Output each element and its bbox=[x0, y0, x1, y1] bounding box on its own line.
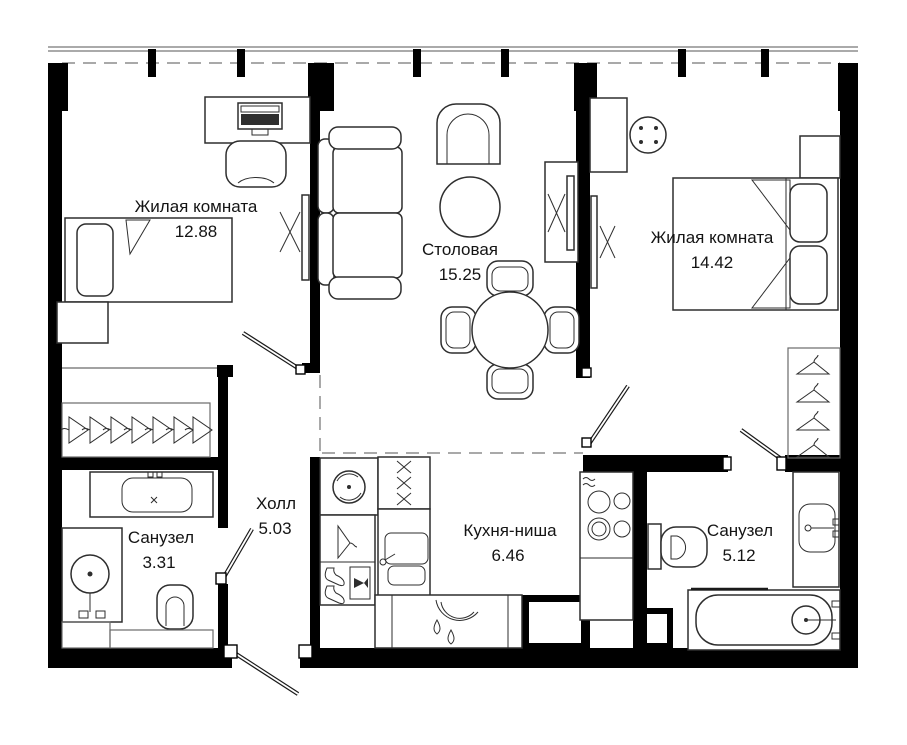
tv-wall-right-icon bbox=[591, 196, 615, 288]
washing-machine-icon bbox=[320, 458, 378, 515]
room-name: Кухня-ниша bbox=[463, 521, 557, 540]
toilet1-icon bbox=[157, 585, 193, 629]
zone-boundaries bbox=[320, 375, 583, 453]
kitchen-counter-bottom bbox=[375, 595, 522, 648]
floor-plan-page: Жилая комната 12.88 Столовая 15.25 Жилая… bbox=[0, 0, 907, 745]
bathroom1-ledges bbox=[62, 622, 213, 648]
room-label-hall: Холл 5.03 bbox=[256, 494, 296, 538]
closet-hangers-icon bbox=[61, 368, 217, 457]
door-entrance bbox=[224, 645, 312, 694]
room-name: Жилая комната bbox=[135, 197, 258, 216]
room-label-bath-2: Санузел 5.12 bbox=[707, 521, 773, 565]
dresser-icon bbox=[590, 98, 627, 172]
room-name: Столовая bbox=[422, 240, 498, 259]
room-area: 5.03 bbox=[258, 519, 291, 538]
facade-windows bbox=[48, 47, 858, 77]
shower-icon bbox=[62, 528, 122, 622]
room-name: Холл bbox=[256, 494, 296, 513]
cabinet-icon bbox=[800, 136, 840, 178]
bathroom1-sink-icon bbox=[90, 472, 213, 517]
toilet2-icon bbox=[648, 524, 707, 569]
room-name: Санузел bbox=[128, 528, 194, 547]
side-table-icon bbox=[630, 117, 666, 153]
tv-wall-left-icon bbox=[280, 195, 309, 280]
nightstand-icon bbox=[57, 302, 108, 343]
door-bath1 bbox=[216, 529, 252, 584]
bathtub-icon bbox=[688, 589, 840, 650]
room-area: 6.46 bbox=[491, 546, 524, 565]
sofa-icon bbox=[318, 127, 402, 299]
room-area: 3.31 bbox=[142, 553, 175, 572]
fridge-icon bbox=[378, 457, 430, 509]
floor-plan: Жилая комната 12.88 Столовая 15.25 Жилая… bbox=[0, 0, 907, 745]
room-area: 5.12 bbox=[722, 546, 755, 565]
coffee-table-icon bbox=[440, 177, 500, 237]
hall-closet-icon bbox=[320, 515, 375, 605]
door-bath2 bbox=[723, 430, 786, 470]
stove-icon bbox=[580, 472, 633, 620]
room-area: 14.42 bbox=[691, 253, 734, 272]
desk-icon bbox=[205, 97, 310, 143]
door-living2 bbox=[582, 368, 628, 447]
armchair-icon bbox=[437, 104, 500, 164]
room-name: Жилая комната bbox=[651, 228, 774, 247]
room-area: 12.88 bbox=[175, 222, 218, 241]
bathroom2-sink-icon bbox=[793, 472, 839, 587]
office-chair-icon bbox=[226, 141, 286, 187]
wardrobe-hangers-icon bbox=[788, 348, 840, 458]
kitchen-counter bbox=[378, 509, 430, 605]
door-living1 bbox=[243, 333, 305, 374]
room-label-bath-1: Санузел 3.31 bbox=[128, 528, 194, 572]
tv-stand-dining-icon bbox=[545, 162, 578, 262]
room-label-kitchen: Кухня-ниша 6.46 bbox=[463, 521, 557, 565]
room-area: 15.25 bbox=[439, 265, 482, 284]
room-name: Санузел bbox=[707, 521, 773, 540]
